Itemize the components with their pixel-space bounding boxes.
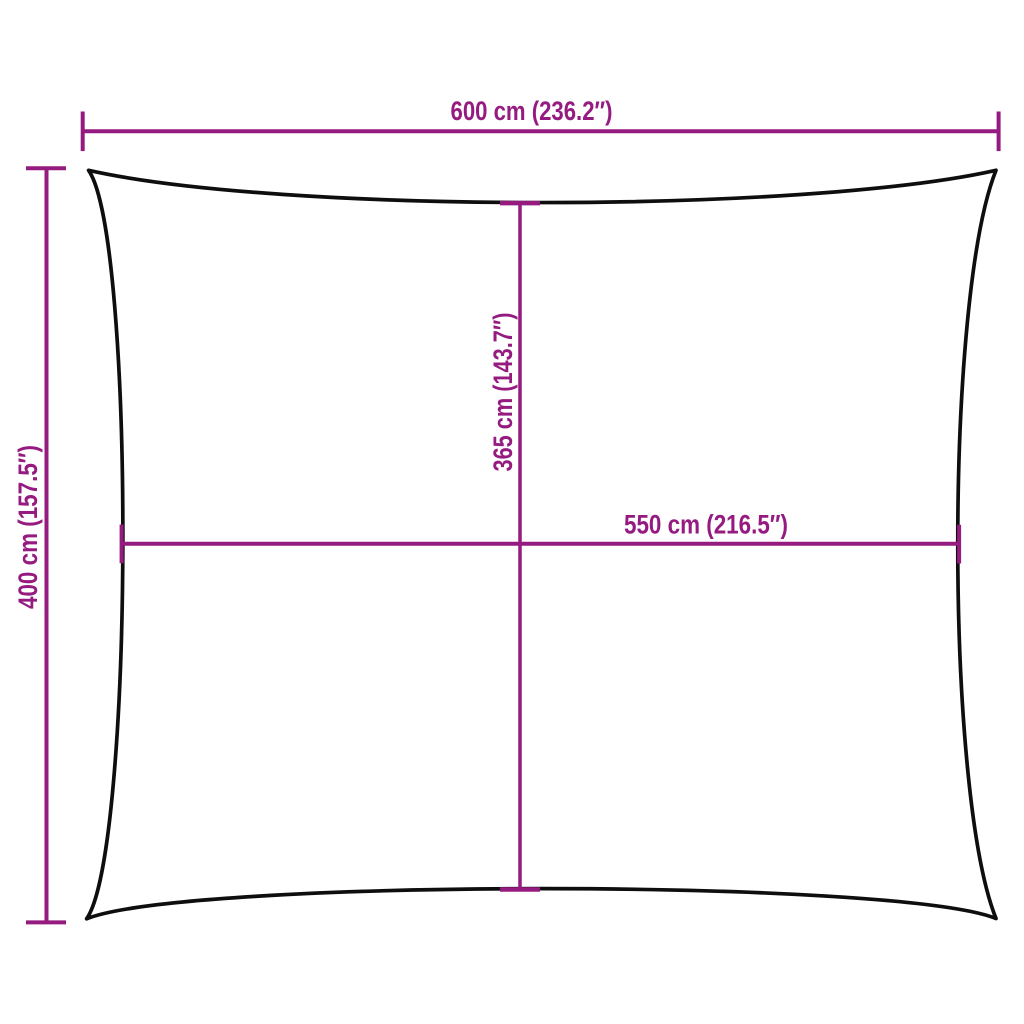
svg-text:365 cm (143.7″): 365 cm (143.7″) xyxy=(488,313,518,472)
svg-text:400 cm (157.5″): 400 cm (157.5″) xyxy=(13,445,43,609)
svg-text:600 cm (236.2″): 600 cm (236.2″) xyxy=(451,96,613,126)
svg-text:550 cm (216.5″): 550 cm (216.5″) xyxy=(624,510,788,540)
